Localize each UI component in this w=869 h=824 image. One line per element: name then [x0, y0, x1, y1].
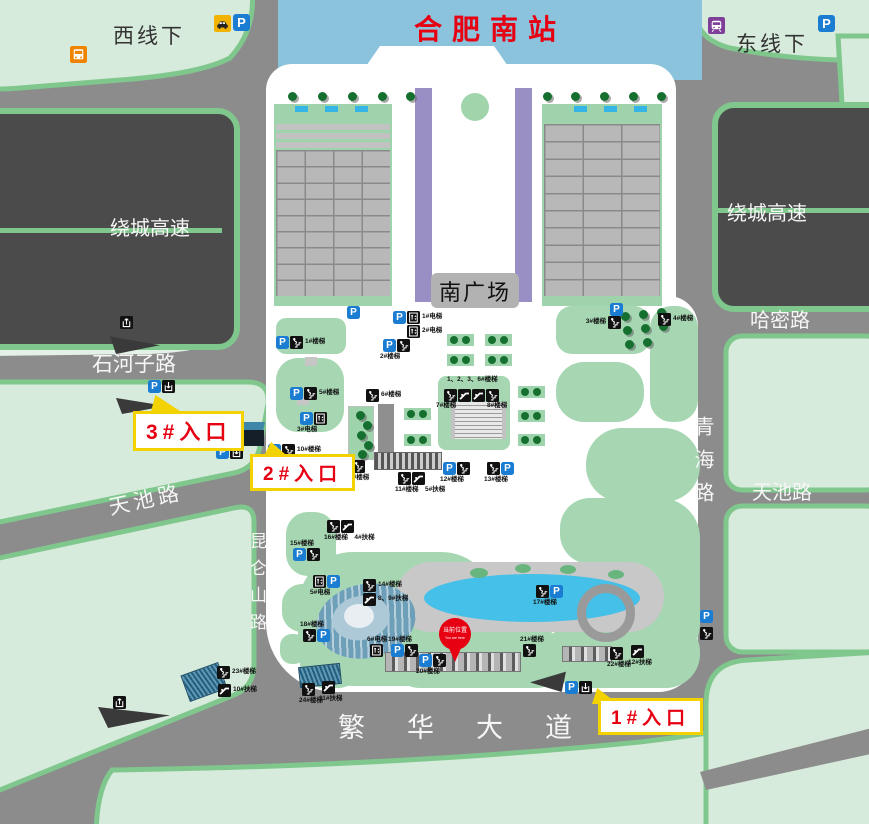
facility-label: 14#楼梯 — [378, 581, 402, 588]
facility-marker[interactable]: P5#楼梯 — [290, 387, 317, 400]
station-title: 合肥南站 — [278, 8, 702, 48]
facility-label: 6#电梯 — [367, 636, 387, 643]
facility-label: 2#电梯 — [422, 327, 442, 334]
parking-icon: P — [327, 575, 340, 588]
parking-icon: P — [501, 462, 514, 475]
tree — [500, 336, 508, 344]
tree — [533, 412, 541, 420]
planter-bench — [518, 434, 545, 446]
parking-icon: P — [148, 380, 161, 393]
tree — [488, 336, 496, 344]
facility-marker[interactable]: P15#楼梯 — [293, 548, 320, 561]
planter-bench — [518, 386, 545, 398]
facility-marker[interactable]: P18#楼梯 — [303, 629, 330, 642]
stairs-icon — [397, 339, 410, 352]
facility-label: 13#楼梯 — [484, 476, 508, 483]
stairs-icon — [457, 462, 470, 475]
tree — [625, 340, 634, 349]
facility-marker[interactable]: P — [148, 380, 175, 393]
facility-marker[interactable]: P19#楼梯 — [391, 644, 418, 657]
shihezi-road-label: 石河子路 — [92, 348, 176, 378]
facility-label: 18#楼梯 — [300, 621, 324, 628]
facility-label: 11#扶梯 — [319, 695, 343, 702]
facility-label: 21#楼梯 — [520, 636, 544, 643]
facility-marker[interactable]: 6#楼梯 — [366, 389, 379, 402]
facility-marker[interactable]: 14#楼梯 — [363, 579, 376, 592]
facility-marker[interactable]: 24#楼梯 — [302, 683, 315, 696]
facility-marker[interactable]: 23#楼梯 — [217, 666, 230, 679]
facility-marker[interactable]: P — [347, 306, 360, 319]
tree — [462, 356, 470, 364]
facility-marker[interactable]: 11#楼梯 5#扶梯 — [398, 472, 425, 485]
bus-icon — [70, 46, 87, 63]
facility-label: 1#楼梯 — [305, 338, 325, 345]
facility-label: 12#楼梯 — [440, 476, 464, 483]
planter-bench — [518, 410, 545, 422]
parking-icon: P — [818, 15, 835, 32]
facility-marker[interactable]: P5#电梯 — [313, 575, 340, 588]
facility-label: 12#扶梯 — [628, 659, 652, 666]
facility-marker[interactable] — [113, 696, 126, 709]
stairs-icon — [433, 654, 446, 667]
location-pin-label: 当前位置 — [443, 628, 467, 635]
location-pin-sublabel: You are here — [445, 636, 465, 640]
tree — [419, 410, 427, 418]
tree — [521, 388, 529, 396]
hami-road-label: 哈密路 — [750, 304, 810, 333]
facility-label: 6#楼梯 — [381, 391, 401, 398]
facility-label: 15#楼梯 — [290, 540, 314, 547]
pond-bush — [515, 564, 531, 573]
facility-marker[interactable]: 21#楼梯 — [523, 644, 536, 657]
ring-expressway-label-right: 绕城高速 — [727, 197, 807, 226]
planter-bench — [447, 354, 474, 366]
facility-label: 20#楼梯 — [416, 668, 440, 675]
escalator-icon — [472, 389, 485, 402]
west-line-label: 西线下 — [113, 20, 185, 50]
planter-bench — [404, 434, 431, 446]
facility-marker[interactable]: 1、2、3、6#楼梯 — [447, 376, 498, 383]
parking-icon: P — [347, 306, 360, 319]
tree — [406, 92, 415, 101]
tree — [407, 410, 415, 418]
skylight — [295, 106, 308, 112]
facility-marker[interactable]: 12#扶梯 — [631, 645, 644, 658]
tree — [639, 310, 648, 319]
stairs-icon — [536, 585, 549, 598]
tree — [571, 92, 580, 101]
metro-stop-marker[interactable] — [708, 17, 725, 34]
lawn — [586, 428, 700, 502]
circular-planter — [577, 584, 635, 642]
pond-bush — [560, 565, 576, 574]
tree — [521, 436, 529, 444]
tree — [356, 411, 365, 420]
facility-marker[interactable]: P13#楼梯 — [487, 462, 514, 475]
stairs-icon — [700, 627, 713, 640]
facility-marker[interactable]: P — [565, 681, 592, 694]
parking-icon: P — [293, 548, 306, 561]
stairs-icon — [398, 472, 411, 485]
parking-icon: P — [276, 336, 289, 349]
facility-marker[interactable] — [700, 627, 713, 640]
taxi-icon — [214, 15, 231, 32]
parking-icon: P — [317, 629, 330, 642]
tree — [533, 436, 541, 444]
facility-label: 8、9#扶梯 — [378, 595, 408, 602]
facility-label: 10#楼梯 — [297, 446, 321, 453]
service-structure — [378, 404, 394, 456]
facility-marker[interactable]: 6#电梯 — [370, 644, 383, 657]
escalator-icon — [412, 472, 425, 485]
facility-label: 11#楼梯 5#扶梯 — [395, 486, 445, 493]
location-pin[interactable]: 当前位置 You are here — [439, 618, 471, 650]
tree — [643, 338, 652, 347]
stairs-icon — [486, 389, 499, 402]
qinghai-road-label: 青海路 — [688, 416, 717, 515]
elevator-icon — [314, 412, 327, 425]
facility-marker[interactable]: 7#楼梯 — [436, 402, 456, 409]
plaza-roundel — [461, 93, 489, 121]
tree — [450, 356, 458, 364]
tree — [363, 421, 372, 430]
entrance-2-callout[interactable]: 2#入口 — [250, 454, 355, 491]
elevator-icon — [407, 325, 420, 338]
stairs-icon — [290, 336, 303, 349]
block-east-mid-1 — [726, 336, 869, 490]
tree — [357, 431, 366, 440]
facility-label: 5#楼梯 — [319, 389, 339, 396]
tree — [533, 388, 541, 396]
tree — [543, 92, 552, 101]
parking-icon: P — [383, 339, 396, 352]
exit-icon — [120, 316, 133, 329]
tree — [450, 336, 458, 344]
pond-bush — [470, 568, 488, 578]
facility-label: 10#扶梯 — [233, 686, 257, 693]
skylight — [634, 106, 647, 112]
facility-label: 19#楼梯 — [388, 636, 412, 643]
parking-icon: P — [443, 462, 456, 475]
stairs-icon — [610, 647, 623, 660]
stairs-icon — [217, 666, 230, 679]
tree — [629, 92, 638, 101]
tree — [358, 450, 367, 459]
facility-label: 3#电梯 — [297, 426, 317, 433]
entrance-1-callout[interactable]: 1#入口 — [598, 698, 703, 735]
tree — [600, 92, 609, 101]
stairs-icon — [327, 520, 340, 533]
station-column-west — [415, 88, 432, 302]
stairs-icon — [304, 387, 317, 400]
tree — [348, 92, 357, 101]
facility-marker[interactable]: 2#电梯 — [407, 325, 420, 338]
stairs-icon — [608, 316, 621, 329]
elevator-icon — [370, 644, 383, 657]
facility-label: 17#楼梯 — [533, 599, 557, 606]
south-plaza-label: 南广场 — [431, 273, 519, 308]
east-line-label: 东线下 — [736, 28, 808, 58]
planter-bench — [447, 334, 474, 346]
stairs-icon — [658, 313, 671, 326]
facility-marker[interactable]: P12#楼梯 — [443, 462, 470, 475]
station-column-east — [515, 88, 532, 302]
exit-icon — [113, 696, 126, 709]
skylight — [604, 106, 617, 112]
stairs-icon — [444, 389, 457, 402]
escalator-icon — [341, 520, 354, 533]
facility-label: 1、2、3、6#楼梯 — [447, 376, 498, 383]
facility-marker[interactable]: P3#电梯 — [300, 412, 327, 425]
bench — [305, 357, 317, 366]
escalator-icon — [322, 681, 335, 694]
facility-marker[interactable] — [120, 316, 133, 329]
entrance-icon — [162, 380, 175, 393]
parking-icon: P — [565, 681, 578, 694]
elevator-icon — [407, 311, 420, 324]
parking-icon: P — [700, 610, 713, 623]
tree — [462, 336, 470, 344]
facility-marker[interactable]: 4#楼梯 — [658, 313, 671, 326]
skylight — [355, 106, 368, 112]
tree — [364, 441, 373, 450]
escalator-bank — [374, 452, 442, 470]
tree — [500, 356, 508, 364]
facility-label: 16#楼梯 4#扶梯 — [324, 534, 375, 541]
tianchi-road-label-right: 天池路 — [752, 476, 812, 505]
amphitheater-core — [344, 604, 374, 628]
west-hall-slats — [276, 124, 390, 148]
facility-marker[interactable] — [444, 389, 499, 402]
block-southwest — [0, 507, 254, 794]
planter-bench — [404, 408, 431, 420]
facility-marker[interactable]: 3#楼梯 — [608, 316, 621, 329]
stairs-icon — [366, 389, 379, 402]
facility-label: 1#电梯 — [422, 313, 442, 320]
facility-label: 2#楼梯 — [380, 353, 400, 360]
skylight — [325, 106, 338, 112]
taxi-stop-marker[interactable] — [214, 15, 231, 32]
stairs-icon — [405, 644, 418, 657]
tree — [419, 436, 427, 444]
facility-label: 5#电梯 — [310, 589, 330, 596]
escalator-icon — [458, 389, 471, 402]
entrance-icon — [579, 681, 592, 694]
west-hall-roof-grid — [276, 150, 390, 296]
kunlunshan-road-label: 昆仑山路 — [244, 532, 269, 640]
stairs-icon — [487, 462, 500, 475]
parking-icon: P — [610, 303, 623, 316]
stairs-icon — [523, 644, 536, 657]
parking-icon: P — [300, 412, 313, 425]
station-area-map: 绕城高速 绕城高速 合肥南站 南广场 西线下 东线下 — [0, 0, 869, 824]
planter-bench — [485, 354, 512, 366]
east-hall-roof-grid — [544, 124, 660, 296]
facility-marker[interactable]: 22#楼梯 — [610, 647, 623, 660]
block-east-mid-2 — [726, 506, 869, 652]
stairs-icon — [307, 548, 320, 561]
parking-stop-marker[interactable]: P — [233, 14, 250, 31]
facility-marker[interactable]: 16#楼梯 4#扶梯 — [327, 520, 354, 533]
lawn — [556, 362, 644, 422]
parking-icon: P — [550, 585, 563, 598]
tree — [623, 326, 632, 335]
parking-icon: P — [391, 644, 404, 657]
pond-bush — [608, 570, 624, 579]
parking-icon: P — [419, 654, 432, 667]
tree — [288, 92, 297, 101]
tree — [407, 436, 415, 444]
facility-marker[interactable]: P1#楼梯 — [276, 336, 303, 349]
facility-label: 8#楼梯 — [487, 402, 507, 409]
facility-marker[interactable]: P1#电梯 — [393, 311, 420, 324]
entrance-3-callout[interactable]: 3#入口 — [133, 411, 244, 451]
planter-bench — [485, 334, 512, 346]
facility-marker[interactable]: 10#扶梯 — [218, 684, 231, 697]
facility-label: 4#楼梯 — [673, 315, 693, 322]
fanhua-avenue-label: 繁华大道 — [338, 706, 614, 745]
facility-marker[interactable]: 11#扶梯 — [322, 681, 335, 694]
elevator-icon — [313, 575, 326, 588]
facility-marker[interactable]: P20#楼梯 — [419, 654, 446, 667]
facility-marker[interactable]: 8、9#扶梯 — [363, 593, 376, 606]
facility-label: 7#楼梯 — [436, 402, 456, 409]
tree — [657, 92, 666, 101]
facility-label: 3#楼梯 — [586, 318, 606, 325]
crosswalk-band — [562, 646, 612, 662]
stairs-icon — [303, 629, 316, 642]
stairs-icon — [302, 683, 315, 696]
escalator-icon — [631, 645, 644, 658]
facility-marker[interactable]: 8#楼梯 — [487, 402, 507, 409]
escalator-icon — [218, 684, 231, 697]
ring-expressway-label-left: 绕城高速 — [110, 212, 190, 241]
tree — [521, 412, 529, 420]
tree — [318, 92, 327, 101]
parking-icon: P — [290, 387, 303, 400]
parking-icon: P — [393, 311, 406, 324]
facility-marker[interactable]: P2#楼梯 — [383, 339, 410, 352]
facility-marker[interactable]: P — [700, 610, 713, 623]
parking-icon: P — [233, 14, 250, 31]
metro-icon — [708, 17, 725, 34]
tree — [378, 92, 387, 101]
bus-stop-marker[interactable] — [70, 46, 87, 63]
escalator-icon — [363, 593, 376, 606]
tree — [641, 324, 650, 333]
stairs-icon — [363, 579, 376, 592]
facility-marker[interactable]: P17#楼梯 — [536, 585, 563, 598]
facility-label: 23#楼梯 — [232, 668, 256, 675]
skylight — [574, 106, 587, 112]
facility-marker[interactable]: P — [610, 303, 623, 316]
parking-stop-marker[interactable]: P — [818, 15, 835, 32]
lawn — [556, 306, 650, 354]
tree — [488, 356, 496, 364]
